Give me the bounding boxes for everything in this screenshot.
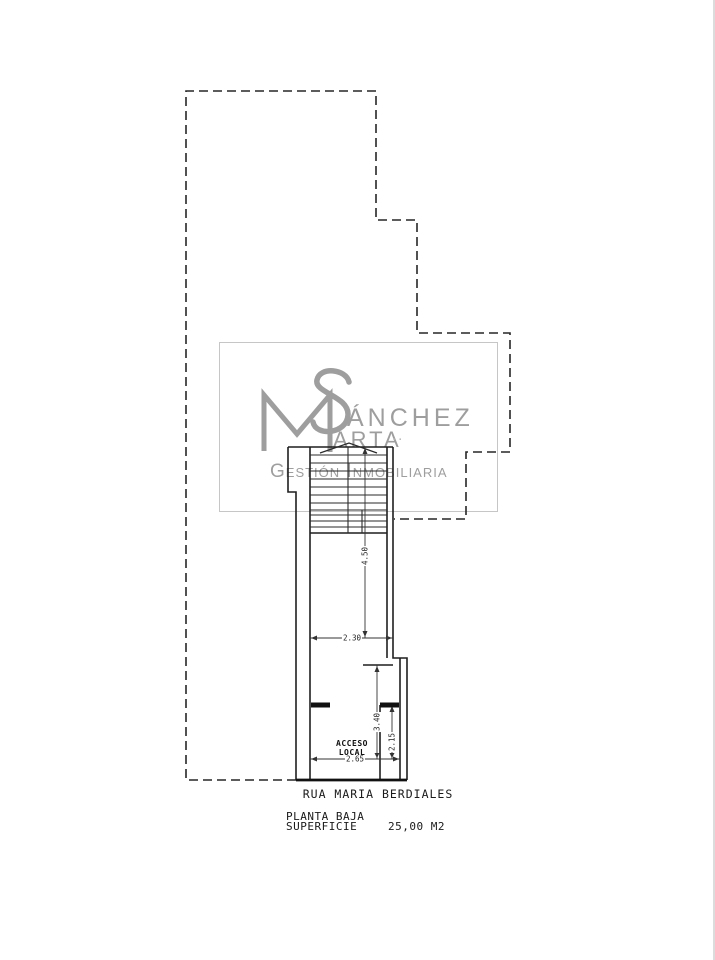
surface-value: 25,00 M2	[388, 822, 445, 832]
floor-plan-page: ÁNCHEZ ARTA .. Gestión Inmobiliaria	[0, 0, 715, 960]
door-thresholds	[311, 703, 399, 708]
staircase	[310, 443, 387, 533]
access-label-line2: LOCAL	[336, 748, 368, 757]
access-label-line1: ACCESO	[336, 739, 368, 748]
dim-corridor-width: 2.30	[342, 634, 362, 643]
dim-access: 3.40	[373, 712, 382, 732]
access-local-label: ACCESO LOCAL	[336, 739, 368, 757]
street-name: RUA MARIA BERDIALES	[303, 787, 454, 801]
property-boundary-dashed	[186, 91, 510, 780]
dim-entry: 2.15	[388, 732, 397, 752]
surface-label: SUPERFICIE	[286, 822, 357, 832]
dim-stairs: 4.50	[361, 546, 370, 566]
stair-divider	[348, 447, 362, 533]
